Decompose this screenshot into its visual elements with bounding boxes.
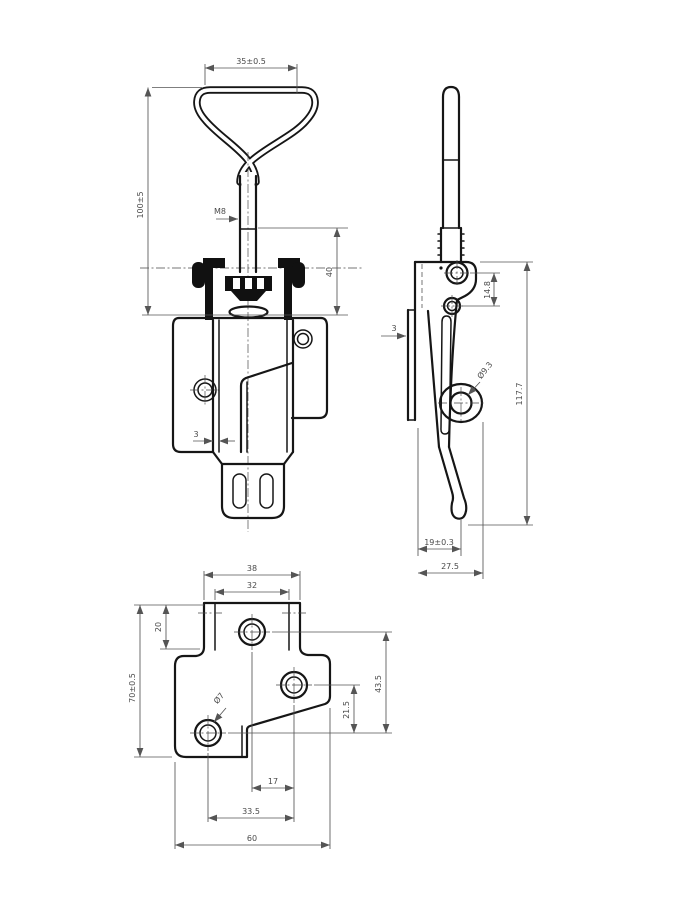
dim-rivet-pitch: 14.8	[483, 281, 492, 299]
dim-wall-thickness: 3	[193, 430, 198, 439]
slotted-foot	[222, 464, 284, 518]
dim-hole-span-y: 43.5	[374, 675, 383, 693]
dim-handle-width: 35±0.5	[236, 57, 266, 66]
side-geometry	[408, 87, 486, 519]
dim-hook-offset: 19±0.3	[424, 538, 454, 547]
front-geometry	[140, 90, 362, 532]
drawing-canvas: 35±0.5 100±5 40 M8 3	[0, 0, 700, 920]
handle-loop	[197, 90, 315, 182]
dim-tab-inner-width: 32	[247, 581, 257, 590]
dim-plate-length: 70±0.5	[128, 673, 137, 703]
dim-mount-hole-dia: Ø7	[211, 690, 226, 705]
dim-plate-thickness: 3	[391, 324, 396, 333]
side-view: 3 14.8 Ø9.3 117.7 19±0.3 27.5	[381, 87, 533, 579]
dim-side-overall-height: 117.7	[515, 383, 524, 406]
rivet-hole-right	[294, 330, 312, 348]
dim-overall-height: 100±5	[136, 191, 145, 218]
front-view: 35±0.5 100±5 40 M8 3	[136, 57, 362, 532]
foot-slot-left	[233, 474, 246, 508]
dim-keeper-hole-dia: Ø9.3	[475, 360, 495, 381]
dim-overall-depth: 27.5	[441, 562, 459, 571]
rod-cap	[443, 87, 459, 97]
technical-drawing: 35±0.5 100±5 40 M8 3	[0, 0, 700, 920]
dim-thread: M8	[214, 207, 226, 216]
dim-tab-outer-width: 38	[247, 564, 257, 573]
flat-geometry	[175, 603, 330, 757]
pivot-boss-left	[192, 262, 205, 288]
dim-rod-length: 40	[325, 267, 334, 277]
lever	[428, 311, 439, 447]
dim-plate-width: 60	[247, 834, 257, 843]
pivot-boss-right	[292, 262, 305, 288]
flat-dimensions: 38 32 20 70±0.5 43.5 21.5 Ø7	[128, 564, 392, 849]
hook-tip	[452, 503, 467, 519]
flat-pattern-view: 38 32 20 70±0.5 43.5 21.5 Ø7	[128, 564, 392, 849]
dim-hole-span-x: 33.5	[242, 807, 260, 816]
foot-slot-right	[260, 474, 273, 508]
pivot-flange-left	[203, 258, 225, 268]
dim-hole-mid-y: 21.5	[342, 701, 351, 719]
washer	[230, 307, 268, 318]
dim-tab-depth: 20	[154, 622, 163, 632]
dim-hole-pitch-x: 17	[268, 777, 278, 786]
